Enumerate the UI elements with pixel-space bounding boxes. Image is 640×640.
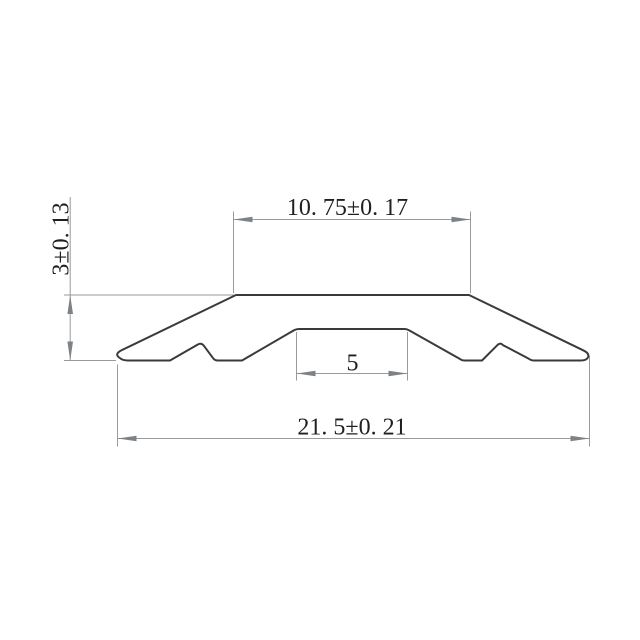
arrowhead-down	[67, 342, 73, 361]
drawing-page: 10. 75±0. 17 3±0. 13 5 21. 5±	[0, 0, 640, 640]
arrowhead-up	[67, 295, 73, 314]
dim-height: 3±0. 13	[49, 197, 235, 361]
arrowhead-right	[571, 436, 590, 442]
arrowhead-left	[297, 371, 316, 377]
arrowhead-right	[389, 371, 408, 377]
drawing-canvas: 10. 75±0. 17 3±0. 13 5 21. 5±	[0, 0, 640, 640]
arrowhead-left	[118, 436, 137, 442]
arrowhead-right	[452, 217, 471, 223]
dimension-label-top-width: 10. 75±0. 17	[287, 195, 408, 221]
arrowhead-left	[234, 217, 253, 223]
dimension-label-height: 3±0. 13	[49, 202, 75, 275]
dim-groove-width: 5	[297, 332, 408, 381]
dimension-label-groove-width: 5	[347, 351, 359, 377]
dim-top-width: 10. 75±0. 17	[234, 195, 471, 293]
dimension-label-overall-width: 21. 5±0. 21	[297, 415, 406, 441]
